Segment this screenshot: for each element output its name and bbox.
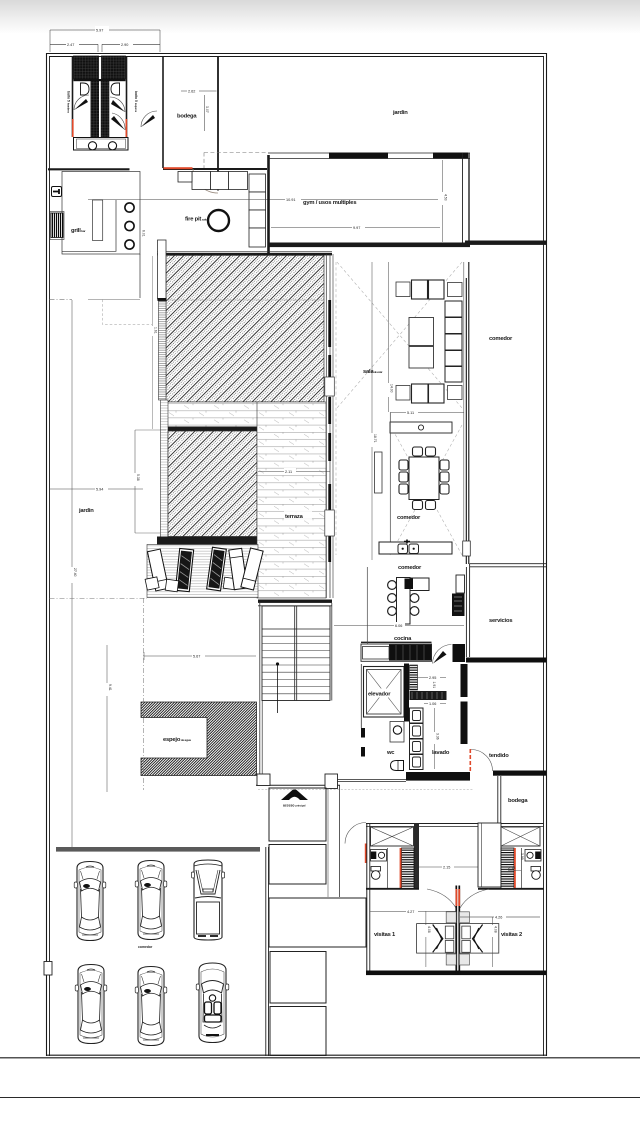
svg-text:6.06: 6.06 (395, 624, 402, 628)
svg-text:visitas 1: visitas 1 (374, 932, 396, 938)
svg-text:6.01: 6.01 (142, 230, 146, 237)
svg-text:2.62: 2.62 (188, 90, 195, 94)
svg-text:4.08: 4.08 (494, 926, 498, 933)
svg-text:5.38: 5.38 (136, 474, 140, 481)
svg-text:gym / usos multiples: gym / usos multiples (303, 200, 356, 206)
svg-text:jardin: jardin (392, 110, 408, 116)
svg-text:servicios: servicios (489, 618, 512, 624)
svg-text:10.91: 10.91 (286, 198, 296, 202)
svg-text:3.36: 3.36 (436, 733, 440, 740)
svg-text:bodega: bodega (177, 114, 197, 120)
svg-text:5.97: 5.97 (96, 29, 103, 33)
svg-text:3.99: 3.99 (520, 853, 524, 860)
svg-text:3.07: 3.07 (205, 106, 209, 113)
svg-text:9.41: 9.41 (108, 684, 112, 691)
svg-text:2.90: 2.90 (121, 43, 128, 47)
svg-text:1.61: 1.61 (154, 327, 158, 334)
svg-text:comedor: comedor (138, 945, 153, 949)
svg-text:5.67: 5.67 (193, 655, 200, 659)
svg-text:2.18: 2.18 (508, 866, 515, 870)
svg-text:14.00: 14.00 (390, 384, 394, 393)
svg-text:comedor: comedor (397, 515, 421, 521)
svg-text:2.95: 2.95 (429, 676, 436, 680)
svg-text:tendido: tendido (489, 753, 509, 759)
svg-text:wc: wc (386, 750, 395, 756)
svg-text:comedor: comedor (398, 565, 422, 571)
svg-text:4.08: 4.08 (427, 926, 431, 933)
svg-text:4.27: 4.27 (407, 910, 414, 914)
svg-text:comedor: comedor (489, 336, 513, 342)
svg-text:1.06: 1.06 (429, 702, 436, 706)
svg-text:27.40: 27.40 (73, 568, 77, 577)
svg-text:visitas 2: visitas 2 (501, 932, 522, 938)
svg-text:1.91: 1.91 (432, 682, 436, 689)
svg-text:2.11: 2.11 (285, 470, 292, 474)
svg-text:5.11: 5.11 (407, 411, 414, 415)
svg-text:18.71: 18.71 (373, 434, 377, 443)
svg-text:2.15: 2.15 (443, 866, 450, 870)
svg-text:5.94: 5.94 (96, 488, 103, 492)
svg-text:acceso principal: acceso principal (283, 804, 306, 808)
svg-text:4.50: 4.50 (444, 194, 448, 201)
svg-text:elevador: elevador (368, 692, 391, 698)
svg-text:cocina: cocina (394, 636, 412, 642)
svg-text:jardin: jardin (78, 508, 94, 514)
svg-text:baño 5 hombres: baño 5 hombres (67, 91, 71, 114)
svg-text:baño 5 mujeres: baño 5 mujeres (134, 91, 138, 113)
svg-text:2.47: 2.47 (67, 43, 74, 47)
svg-text:4.26: 4.26 (495, 916, 502, 920)
svg-text:9.97: 9.97 (353, 226, 360, 230)
svg-text:terraza: terraza (285, 514, 304, 520)
svg-text:bodega: bodega (508, 798, 528, 804)
